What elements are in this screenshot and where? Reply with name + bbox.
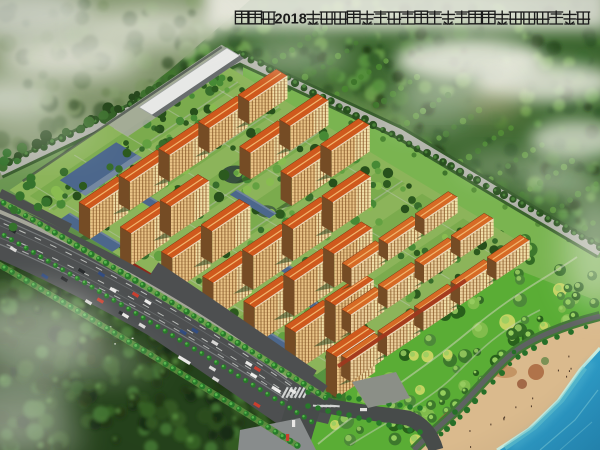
svg-text:2018: 2018 — [275, 12, 307, 28]
